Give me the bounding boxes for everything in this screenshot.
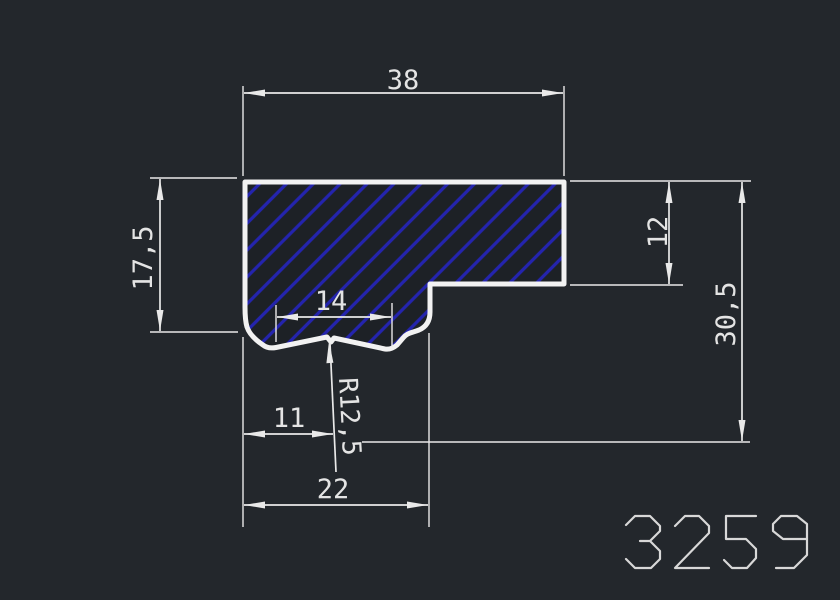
dim-top-width-arrow-left bbox=[244, 90, 265, 97]
dim-left-height: 17,5 bbox=[128, 178, 238, 332]
dim-right-inner-arrow-bottom bbox=[666, 263, 673, 284]
dim-right-inner-value: 12 bbox=[643, 216, 674, 249]
dim-bottom-arrow-left bbox=[244, 502, 265, 509]
dim-left-height-value: 17,5 bbox=[128, 225, 159, 290]
drawing-number-digit bbox=[773, 516, 807, 568]
radius-value: R12,5 bbox=[332, 377, 366, 457]
dim-notch-offset-arrow-right bbox=[312, 431, 333, 438]
dim-bottom-width-value: 22 bbox=[317, 474, 350, 505]
drawing-number-digit bbox=[724, 516, 756, 568]
dim-notch-offset: 11 bbox=[244, 403, 333, 438]
dim-bottom-arrow-right bbox=[407, 502, 428, 509]
cad-canvas: 38 17,5 12 30,5 14 1 bbox=[0, 0, 840, 600]
dim-right-total-arrow-bottom bbox=[739, 420, 746, 441]
profile-outline bbox=[245, 182, 564, 349]
dim-right-total-value: 30,5 bbox=[711, 281, 742, 346]
drawing-number bbox=[626, 516, 807, 568]
dim-right-inner-arrow-top bbox=[666, 182, 673, 203]
drawing-number-digit bbox=[626, 516, 660, 568]
dim-notch-width-value: 14 bbox=[315, 286, 348, 317]
dim-right-inner-height: 12 bbox=[570, 181, 751, 285]
dim-notch-offset-value: 11 bbox=[273, 403, 306, 434]
dim-top-width-arrow-right bbox=[542, 90, 563, 97]
dim-top-width-value: 38 bbox=[387, 65, 420, 96]
dim-left-height-arrow-top bbox=[157, 179, 164, 200]
drawing-number-digit bbox=[675, 516, 709, 568]
dim-top-width: 38 bbox=[243, 65, 564, 176]
dim-right-total-arrow-top bbox=[739, 182, 746, 203]
dim-radius-leader: R12,5 bbox=[326, 341, 366, 472]
dim-notch-offset-arrow-left bbox=[244, 431, 265, 438]
dim-left-height-arrow-bottom bbox=[157, 310, 164, 331]
